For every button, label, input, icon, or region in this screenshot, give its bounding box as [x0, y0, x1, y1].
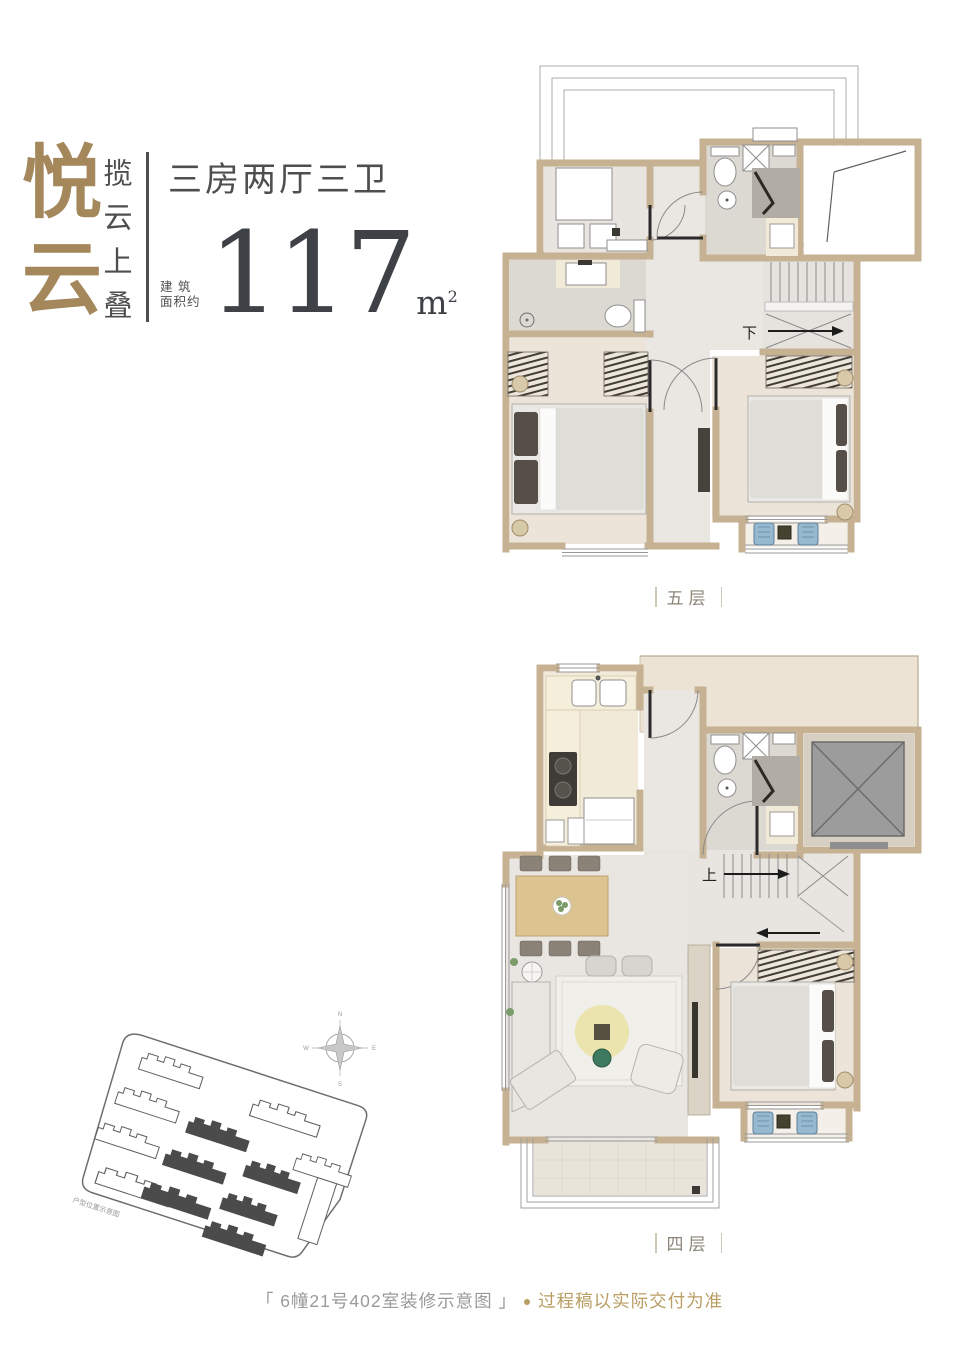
caption-main: 「 6幢21号402室装修示意图 」 [256, 1291, 517, 1311]
stair-direction-lower: 上 [702, 867, 717, 884]
svg-text:S: S [338, 1082, 342, 1088]
floorplan-sheet: 悦云 揽云上叠 三房两厅三卫 建 筑 面积约 117 m2 [0, 0, 979, 1357]
svg-text:E: E [372, 1046, 376, 1052]
svg-text:N: N [338, 1012, 342, 1018]
brand-tagline: 揽云上叠 [100, 158, 129, 334]
floor-plan-lower: 上 [495, 650, 965, 1215]
elevator-icon [812, 742, 904, 849]
layout-spec: 三房两厅三卫 [168, 152, 390, 201]
terrace-drain [692, 1186, 700, 1194]
compass-icon: N E S W [303, 1012, 376, 1088]
area-value: 117 [209, 230, 414, 318]
gold-dot-icon: ● [523, 1293, 532, 1309]
floor-label-lower: 四层 [655, 1230, 722, 1255]
footer-caption: 「 6幢21号402室装修示意图 」 ● 过程稿以实际交付为准 [0, 1288, 979, 1313]
header-divider [146, 152, 149, 322]
floor-plan-upper: 下 [495, 58, 965, 570]
floor-label-upper: 五层 [655, 584, 722, 609]
dining-set [516, 856, 608, 956]
area-unit: m2 [416, 283, 457, 317]
hallway-console [698, 428, 710, 492]
site-plan: 户型位置示意图 N E S W [35, 1005, 395, 1275]
svg-text:W: W [303, 1046, 309, 1052]
area-label: 建 筑 面积约 [160, 280, 201, 310]
area-block: 建 筑 面积约 117 m2 [160, 230, 458, 318]
brand-title: 悦云 [16, 140, 96, 332]
tv-wall [688, 945, 710, 1115]
stair-direction-upper: 下 [742, 325, 757, 342]
caption-disclaimer: 过程稿以实际交付为准 [538, 1291, 723, 1311]
